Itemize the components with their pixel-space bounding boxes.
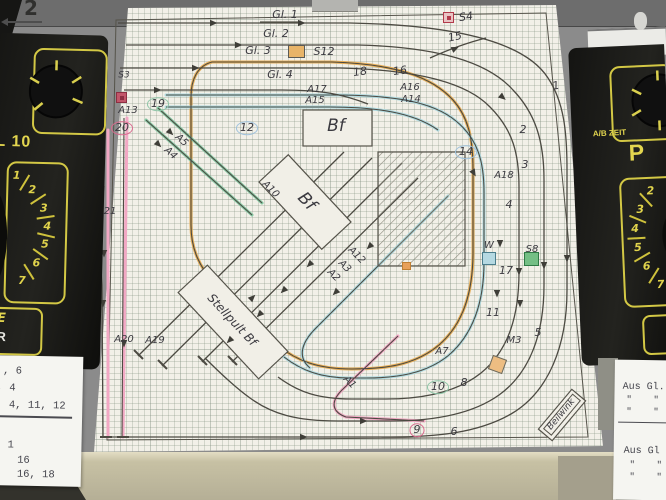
tape-tab [312,0,358,12]
typed-rule [0,415,72,419]
wall-hook [634,12,647,30]
typed-line: Aus Gl. [623,382,665,394]
dial-number: 2 [646,184,654,197]
track-arrow-icon [166,128,176,138]
left-device-model-label: L 10 [0,133,31,152]
typed-note-right: Aus Gl. " " " " Aus Gl " " " " [613,360,666,500]
track-arrow-icon [498,93,508,103]
track-arrow-icon [154,140,164,150]
track-arrow-icon [278,286,288,296]
dial-number: 5 [634,241,642,254]
typed-line: " " [629,472,662,482]
dial-number: 2 [28,183,36,196]
photo-of-track-plan-scene: Gl. 1Gl. 2Gl. 3S12Gl. 4181615S41A17A16A1… [0,0,666,500]
track-arrow-icon [494,290,500,298]
dial-number: 7 [656,278,664,291]
dial-number: 3 [40,201,48,214]
track-arrow-icon [564,255,570,263]
dial-number: 7 [18,274,26,287]
typed-line: , 4 [0,382,16,394]
track-arrow-icon [248,292,258,302]
typed-rule [618,422,666,424]
dial-number: 6 [32,256,40,269]
typed-note-left: , 6 , 4 , 4, 11, 12 1 16 16, 18 [0,355,83,487]
typed-line: Aus Gl [624,446,660,458]
dial-number: 3 [636,203,644,216]
bf-box-rotated [259,155,351,250]
right-device-p-label: P [628,139,645,167]
left-controller-device: L 10 1234567 E R [0,32,108,369]
typed-line: , 4, 11, 12 [0,399,66,412]
dial-divider [627,237,645,239]
plan-border-frame [107,13,588,440]
left-logo-line2: R [0,329,6,344]
right-controller-device: A/B ZEIT P 234567 [568,44,666,366]
typed-line: 1 [7,439,14,451]
track-arrow-icon [541,262,547,270]
typed-line: " " [629,460,662,470]
left-arrow-icon [4,21,42,23]
wall-number-label: 2 [24,0,38,20]
signature-box [538,389,585,440]
typed-line: " " [626,407,659,417]
track-arrow-icon [235,42,243,48]
left-logo-line1: E [0,311,6,326]
track-arrow-icon [210,20,218,26]
dial-number: 4 [631,222,639,235]
dial-number: 6 [643,259,651,272]
track-arrow-icon [516,268,522,276]
dial-number: 1 [13,169,21,182]
track-arrow-icon [298,20,306,26]
track-arrow-icon [304,260,314,270]
track-arrow-icon [121,340,127,348]
dial-number: 4 [43,220,51,233]
typed-line: , 6 [3,365,22,377]
track-arrow-icon [451,44,461,53]
dial-number: 5 [41,237,49,250]
typed-line: 16 [17,455,30,467]
typed-line: " " [626,395,659,405]
bf-box [303,110,372,146]
track-arrow-icon [154,87,162,93]
typed-line: 16, 18 [17,469,55,482]
left-knob-icon [22,57,90,125]
right-knob-icon [627,69,666,132]
hatched-building [378,152,465,266]
right-bottom-box [642,313,666,355]
track-arrow-icon [364,242,374,252]
track-arrow-icon [330,288,340,298]
right-device-zeit-label: A/B ZEIT [593,128,627,138]
track-arrow-icon [497,240,503,248]
left-logo-box [0,307,43,356]
track-arrow-icon [517,300,523,308]
